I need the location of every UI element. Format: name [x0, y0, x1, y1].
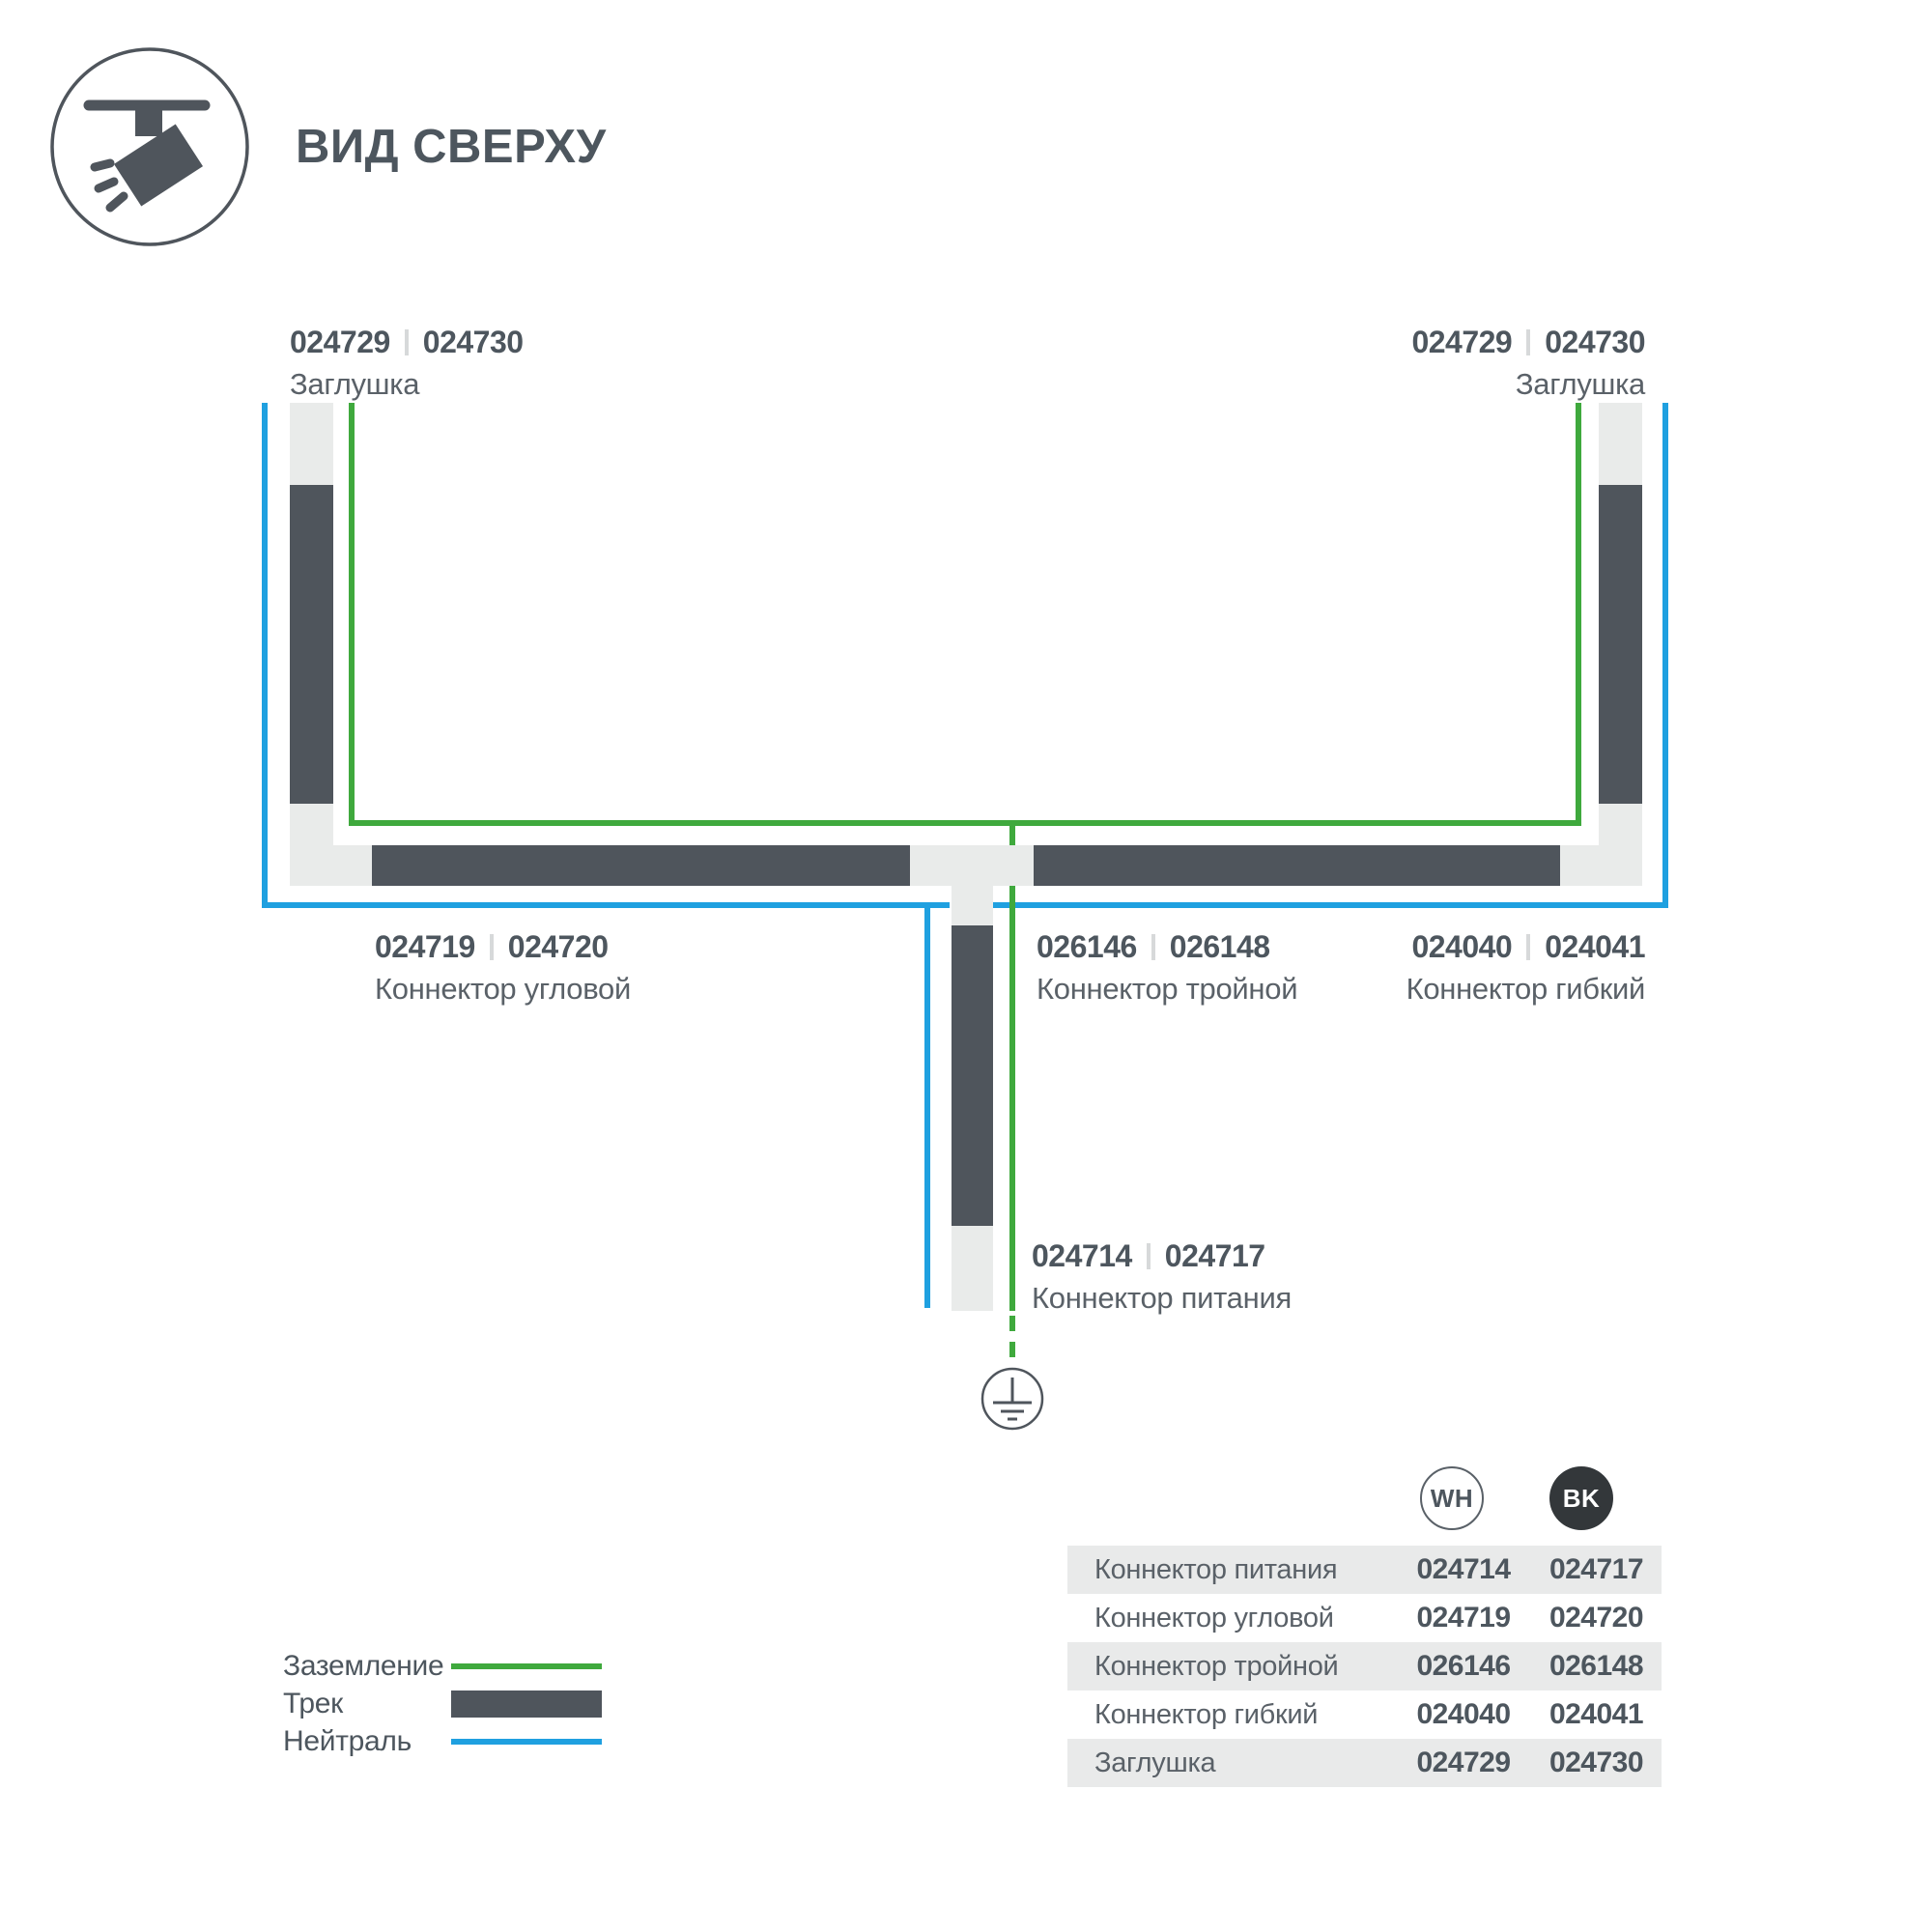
row-code-wh: 026146: [1396, 1650, 1531, 1683]
label-endcap-top-left: 024729 024730 Заглушка: [290, 325, 524, 402]
part-name: Заглушка: [290, 367, 524, 402]
code-wh: 024729: [290, 325, 390, 360]
neutral-line-swatch: [451, 1739, 602, 1745]
ground-line-right-vertical: [1576, 403, 1581, 826]
ground-line-left-vertical: [349, 403, 355, 826]
neutral-line-right-vertical: [1662, 403, 1668, 908]
code-wh: 024714: [1032, 1238, 1132, 1274]
code-bk: 024720: [508, 929, 609, 965]
code-wh: 024719: [375, 929, 475, 965]
code-bk: 026148: [1170, 929, 1270, 965]
divider: [1526, 329, 1530, 355]
legend-item-neutral: Нейтраль: [283, 1722, 602, 1761]
row-code-bk: 026148: [1531, 1650, 1662, 1683]
divider: [1147, 1243, 1151, 1269]
endcap-right: [1599, 403, 1642, 485]
ground-icon: [980, 1367, 1044, 1431]
divider: [1526, 934, 1530, 960]
neutral-line-feed-vertical: [924, 902, 930, 1308]
label-flexible-connector: 024040 024041 Коннектор гибкий: [1406, 929, 1645, 1007]
row-name: Коннектор гибкий: [1094, 1699, 1396, 1731]
part-name: Коннектор гибкий: [1406, 972, 1645, 1007]
part-name: Заглушка: [1411, 367, 1645, 402]
row-code-wh: 024719: [1396, 1602, 1531, 1634]
endcap-codes: 024729 024730: [290, 325, 524, 360]
ground-line-horizontal: [349, 820, 1581, 826]
endcap-left: [290, 403, 333, 485]
code-bk: 024041: [1545, 929, 1645, 965]
triple-codes: 026146 026148: [1037, 929, 1297, 965]
triple-connector-stem: [952, 886, 993, 926]
neutral-line-bottom-right: [993, 902, 1668, 908]
code-bk: 024717: [1165, 1238, 1265, 1274]
neutral-line-bottom-left: [262, 902, 950, 908]
endcap-codes: 024729 024730: [1411, 325, 1645, 360]
divider: [405, 329, 409, 355]
row-code-wh: 024714: [1396, 1553, 1531, 1586]
divider: [490, 934, 494, 960]
table-row: Коннектор питания 024714 024717: [1067, 1546, 1662, 1594]
legend-label: Трек: [283, 1688, 451, 1720]
ground-line-dashed: [1009, 1316, 1015, 1358]
table-row: Коннектор угловой 024719 024720: [1067, 1594, 1662, 1642]
track-bar-swatch: [451, 1690, 602, 1718]
parts-table: Коннектор питания 024714 024717 Коннекто…: [1067, 1546, 1662, 1787]
row-name: Коннектор питания: [1094, 1554, 1396, 1586]
page-title: ВИД СВЕРХУ: [296, 120, 607, 174]
track-light-icon: [48, 45, 251, 248]
ground-line-center-vertical: [1009, 820, 1015, 1311]
row-code-wh: 024729: [1396, 1747, 1531, 1779]
corner-connector-left-h: [290, 845, 372, 886]
legend-item-track: Трек: [283, 1685, 602, 1723]
code-wh: 024040: [1411, 929, 1512, 965]
table-row: Коннектор гибкий 024040 024041: [1067, 1690, 1662, 1739]
row-code-bk: 024730: [1531, 1747, 1662, 1779]
power-codes: 024714 024717: [1032, 1238, 1292, 1274]
table-row: Коннектор тройной 026146 026148: [1067, 1642, 1662, 1690]
corner-connector-right-v: [1599, 804, 1642, 886]
part-name: Коннектор питания: [1032, 1281, 1292, 1316]
label-power-connector: 024714 024717 Коннектор питания: [1032, 1238, 1292, 1316]
label-triple-connector: 026146 026148 Коннектор тройной: [1037, 929, 1297, 1007]
table-row: Заглушка 024729 024730: [1067, 1739, 1662, 1787]
track-left-vertical: [290, 485, 333, 804]
flexible-codes: 024040 024041: [1406, 929, 1645, 965]
neutral-line-left-vertical: [262, 403, 268, 908]
label-corner-connector: 024719 024720 Коннектор угловой: [375, 929, 631, 1007]
row-code-bk: 024041: [1531, 1698, 1662, 1731]
legend-item-ground: Заземление: [283, 1647, 602, 1686]
column-badge-white: WH: [1420, 1466, 1484, 1530]
power-connector: [952, 1226, 993, 1311]
row-name: Коннектор угловой: [1094, 1603, 1396, 1634]
divider: [1151, 934, 1155, 960]
track-center-vertical: [952, 925, 993, 1226]
row-name: Коннектор тройной: [1094, 1651, 1396, 1683]
track-horizontal-left: [372, 845, 910, 886]
corner-codes: 024719 024720: [375, 929, 631, 965]
part-name: Коннектор угловой: [375, 972, 631, 1007]
track-right-vertical: [1599, 485, 1642, 804]
track-horizontal-right: [1034, 845, 1560, 886]
code-wh: 024729: [1411, 325, 1512, 360]
code-wh: 026146: [1037, 929, 1137, 965]
ground-line-swatch: [451, 1663, 602, 1669]
code-bk: 024730: [423, 325, 524, 360]
part-name: Коннектор тройной: [1037, 972, 1297, 1007]
column-badge-black: BK: [1549, 1466, 1613, 1530]
row-code-wh: 024040: [1396, 1698, 1531, 1731]
triple-connector: [910, 845, 1034, 886]
code-bk: 024730: [1545, 325, 1645, 360]
row-code-bk: 024720: [1531, 1602, 1662, 1634]
row-code-bk: 024717: [1531, 1553, 1662, 1586]
row-name: Заглушка: [1094, 1747, 1396, 1779]
legend-label: Заземление: [283, 1650, 451, 1683]
label-endcap-top-right: 024729 024730 Заглушка: [1411, 325, 1645, 402]
legend-label: Нейтраль: [283, 1725, 451, 1758]
